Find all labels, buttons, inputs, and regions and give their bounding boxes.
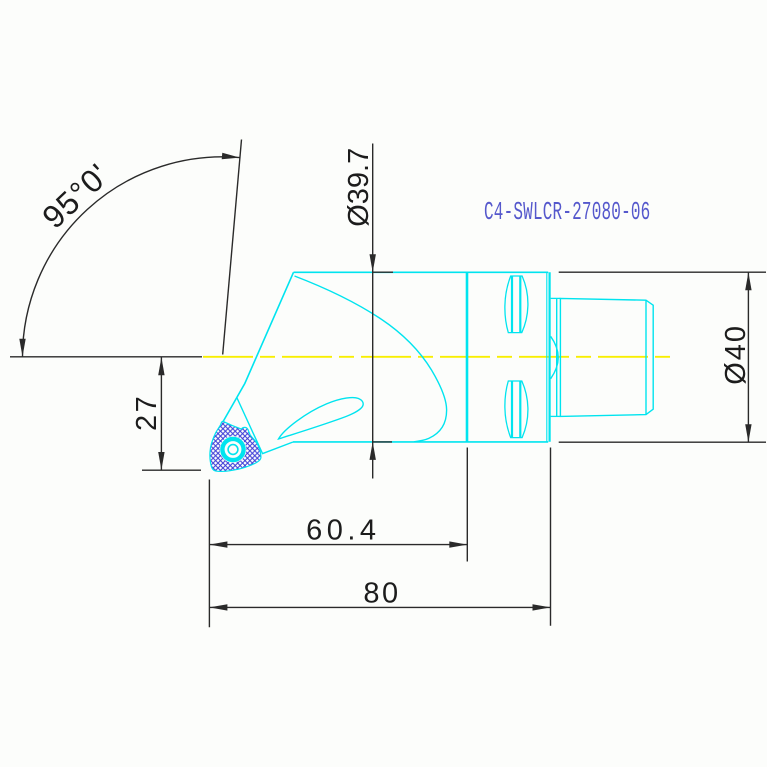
svg-text:Ø39.7: Ø39.7	[343, 148, 375, 227]
svg-text:C4-SWLCR-27080-06: C4-SWLCR-27080-06	[484, 199, 650, 228]
svg-text:27: 27	[131, 394, 163, 431]
svg-text:Ø40: Ø40	[720, 324, 752, 385]
svg-text:80: 80	[363, 578, 400, 610]
svg-text:60.4: 60.4	[306, 515, 380, 547]
